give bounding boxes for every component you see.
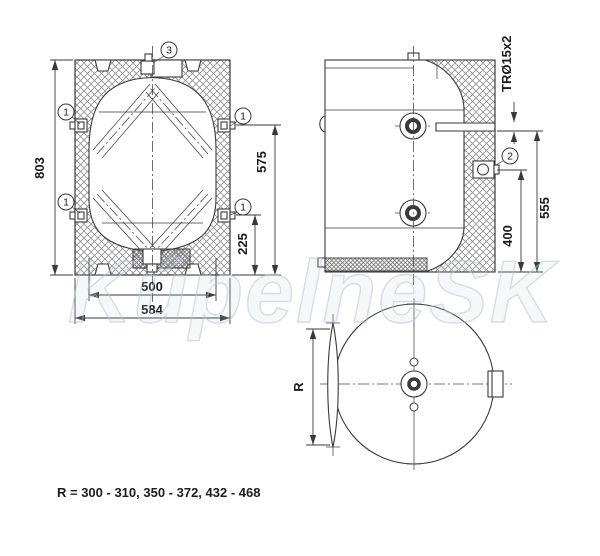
small-port-upper: [410, 358, 418, 366]
dim-tube-spec: TRØ15x2: [499, 36, 514, 144]
callout-2: 2: [494, 148, 518, 166]
dim-label-803: 803: [32, 157, 47, 179]
tube: [436, 123, 494, 131]
callout-2-label: 2: [507, 151, 513, 163]
technical-drawing-page: 803 575 225 500 584: [0, 0, 600, 556]
callout-1-label: 1: [63, 107, 69, 119]
callout-3-label: 3: [166, 45, 172, 57]
callout-1-label: 1: [63, 197, 69, 209]
dim-label-575: 575: [254, 151, 269, 173]
radius-note: R = 300 - 310, 350 - 372, 432 - 468: [57, 485, 260, 500]
dim-radius: R: [291, 329, 330, 445]
top-notch-right: [185, 60, 201, 71]
top-fitting-stud: [145, 54, 152, 61]
left-lug: [320, 116, 325, 132]
callout-1-label: 1: [240, 111, 246, 123]
side-connector-end: [488, 371, 503, 397]
top-notch-left: [95, 60, 111, 71]
top-fitting: [141, 61, 154, 74]
small-port-lower: [410, 403, 418, 411]
dim-label-R: R: [291, 382, 306, 392]
dim-label-tube-spec: TRØ15x2: [499, 36, 514, 92]
dim-label-555: 555: [537, 197, 552, 219]
callout-1-label: 1: [240, 202, 246, 214]
dim-overall-height: 803: [32, 60, 73, 275]
center-boss: [401, 371, 427, 397]
tank-drawing: 803 575 225 500 584: [0, 0, 600, 556]
watermark: KúpelneSK: [68, 242, 559, 341]
top-cutout: [151, 60, 182, 77]
